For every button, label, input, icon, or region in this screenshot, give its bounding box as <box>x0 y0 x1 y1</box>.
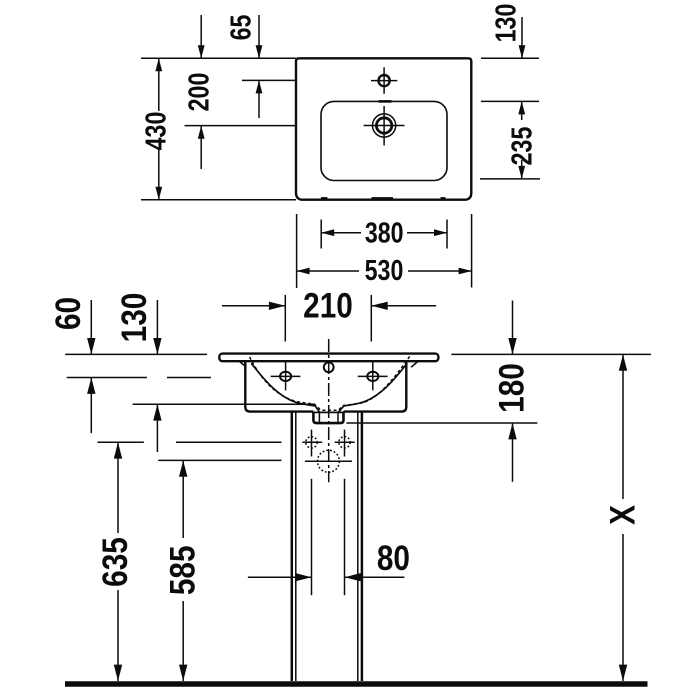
svg-text:585: 585 <box>163 545 202 595</box>
svg-text:130: 130 <box>115 293 154 343</box>
svg-text:635: 635 <box>96 537 135 587</box>
svg-text:430: 430 <box>139 112 172 151</box>
svg-text:380: 380 <box>365 216 404 249</box>
svg-text:210: 210 <box>303 286 353 325</box>
svg-text:200: 200 <box>182 73 215 112</box>
svg-text:80: 80 <box>377 539 410 578</box>
svg-text:60: 60 <box>49 297 88 330</box>
svg-text:X: X <box>603 505 642 525</box>
svg-text:65: 65 <box>224 15 257 41</box>
svg-text:130: 130 <box>489 4 522 43</box>
svg-text:530: 530 <box>365 254 404 287</box>
svg-text:235: 235 <box>505 127 538 166</box>
svg-text:180: 180 <box>492 363 531 413</box>
